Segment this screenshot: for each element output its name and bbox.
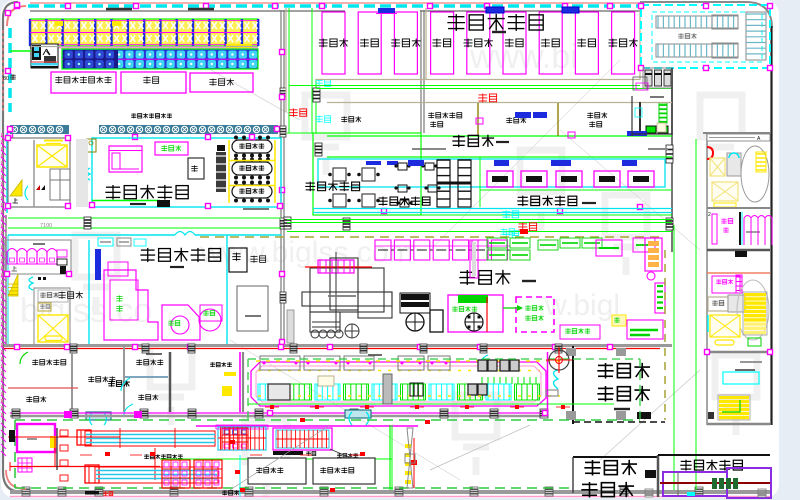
svg-text:7100: 7100 <box>40 223 52 229</box>
svg-text:www.biglss.com: www.biglss.com <box>199 236 413 269</box>
svg-text:2: 2 <box>708 212 711 218</box>
svg-text:80: 80 <box>3 76 9 82</box>
svg-text:w.bigl: w.bigl <box>544 289 620 322</box>
